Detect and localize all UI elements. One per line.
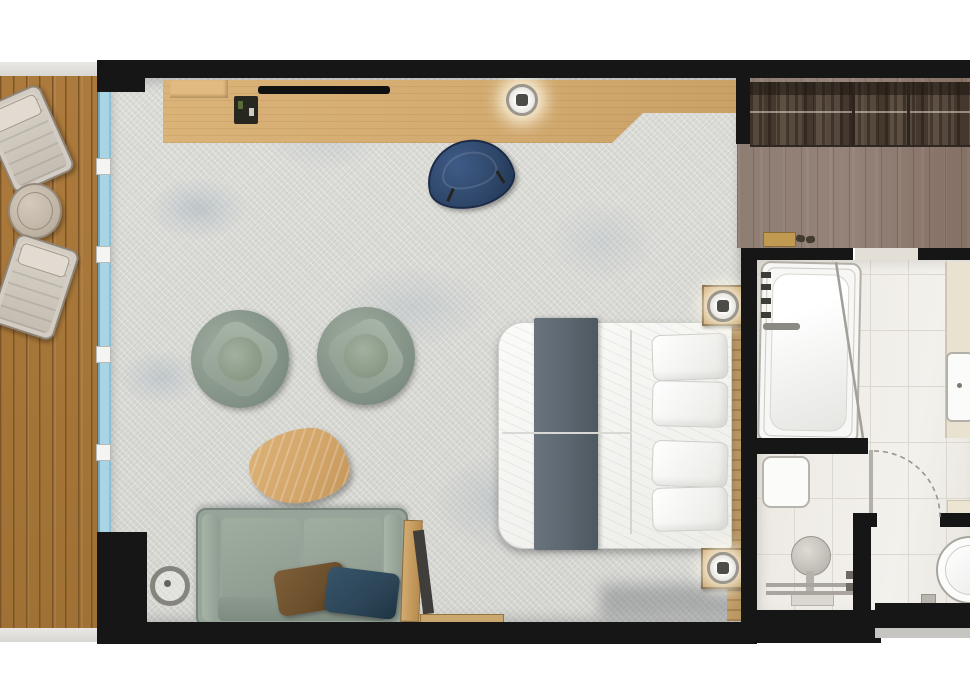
round-side-table	[8, 183, 62, 239]
window-mullion	[96, 246, 111, 263]
tub-faucet	[761, 272, 771, 278]
bed-shadow	[600, 584, 738, 618]
tub-faucet	[761, 298, 771, 304]
bed-pillow	[651, 380, 728, 428]
wardrobe-divider	[907, 82, 910, 145]
wall-shadow	[875, 628, 970, 638]
floor-lamp-icon	[150, 566, 190, 606]
wall-entry-stub	[736, 60, 750, 144]
window-mullion	[96, 158, 111, 175]
duvet-crease	[502, 432, 632, 434]
bed-runner	[534, 318, 598, 550]
wall-bath-top-right	[918, 248, 970, 260]
nightstand-lamp-icon	[707, 552, 739, 584]
nightstand-lamp-icon	[707, 290, 739, 322]
ceiling-light-icon	[506, 84, 538, 116]
bathtub	[757, 261, 862, 444]
wall-wc-left	[853, 513, 871, 612]
tv	[258, 86, 390, 94]
balcony-rail-bottom	[0, 628, 97, 642]
wc-door	[869, 450, 873, 516]
desk-shelf	[170, 80, 228, 98]
bathtub-basin	[769, 273, 849, 432]
armchair-1	[183, 302, 297, 416]
wall-bath-top-left	[741, 248, 853, 260]
tub-handrail	[763, 323, 800, 330]
bathroom-door-threshold	[855, 248, 918, 260]
minibar-tray	[234, 96, 258, 124]
bed-pillow	[651, 333, 729, 382]
wall-bottom-bedroom	[97, 622, 757, 644]
wall-bottom-bath-left	[741, 610, 881, 643]
window-mullion	[96, 444, 111, 461]
wall-bottom-bath-right	[875, 603, 970, 628]
doormat	[763, 232, 796, 247]
shower-bench	[762, 456, 810, 508]
wall-top	[97, 60, 970, 78]
wall-under-tub	[741, 438, 868, 454]
rain-shower-head	[791, 536, 831, 576]
wall-top-left-block	[97, 60, 145, 92]
wall-wc-stub-right	[940, 513, 970, 527]
tub-faucet	[761, 312, 771, 318]
wardrobe-hanging-rod	[750, 111, 970, 113]
window-mullion	[96, 346, 111, 363]
balcony-rail-top	[0, 62, 97, 76]
wardrobe-divider	[852, 82, 855, 145]
wall-wc-stub-left	[853, 513, 877, 527]
wardrobe-shelf	[750, 82, 970, 95]
wardrobe	[750, 82, 970, 147]
washbasin	[946, 352, 970, 422]
slipper	[795, 234, 805, 242]
bed-pillow	[651, 440, 729, 489]
shower-rail	[766, 591, 858, 595]
tub-faucet	[761, 284, 771, 290]
bed-pillow	[651, 486, 728, 532]
shower-rail	[766, 583, 858, 587]
floor-plan	[0, 0, 970, 700]
cushion-teal	[323, 566, 400, 620]
